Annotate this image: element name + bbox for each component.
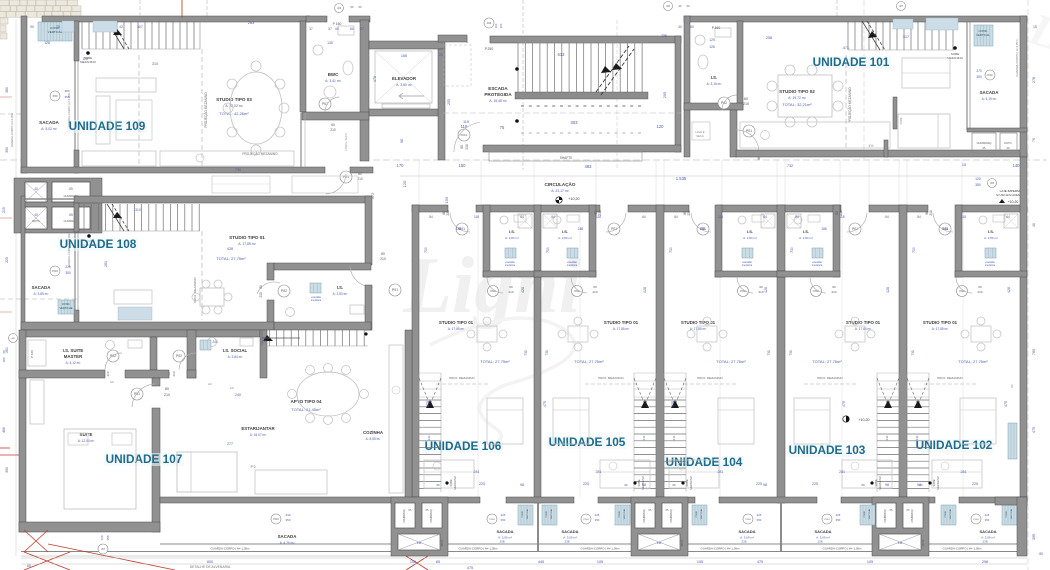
svg-text:SOBE: SOBE xyxy=(899,117,903,124)
svg-text:85: 85 xyxy=(1039,552,1043,556)
svg-text:COND.: COND. xyxy=(1006,510,1008,517)
svg-text:SACADA: SACADA xyxy=(980,90,1000,95)
svg-text:PJ04: PJ04 xyxy=(746,519,752,521)
svg-text:UNIDADE 102: UNIDADE 102 xyxy=(916,438,993,452)
svg-text:STUDIO TIPO 01: STUDIO TIPO 01 xyxy=(229,235,265,240)
svg-text:QUARDA-CORPO | H=1,05m: QUARDA-CORPO | H=1,05m xyxy=(10,113,14,147)
svg-text:CHURRASQ: CHURRASQ xyxy=(403,509,406,522)
svg-text:445: 445 xyxy=(538,560,544,564)
svg-text:DETALHE DE ALVENARIA: DETALHE DE ALVENARIA xyxy=(190,565,231,569)
svg-text:225: 225 xyxy=(985,513,990,517)
svg-text:A: 2,83 m²: A: 2,83 m² xyxy=(505,236,519,240)
svg-text:PROJEÇÃO MEZANINO: PROJEÇÃO MEZANINO xyxy=(203,92,208,128)
svg-text:A: 8,55 m²: A: 8,55 m² xyxy=(366,437,381,441)
svg-text:64: 64 xyxy=(642,215,646,219)
svg-text:VERTICAL: VERTICAL xyxy=(1010,508,1013,519)
svg-text:APTO TIPO 04: APTO TIPO 04 xyxy=(290,399,322,404)
svg-text:VERTICAL: VERTICAL xyxy=(949,508,952,519)
svg-text:VERTICAL: VERTICAL xyxy=(976,33,990,37)
svg-text:+10,20: +10,20 xyxy=(568,197,579,201)
svg-text:170: 170 xyxy=(397,163,405,168)
svg-text:350: 350 xyxy=(975,183,981,187)
svg-text:350: 350 xyxy=(5,467,9,473)
svg-text:66: 66 xyxy=(672,483,676,487)
svg-text:350: 350 xyxy=(501,518,506,522)
svg-text:350: 350 xyxy=(976,75,982,79)
svg-text:A: 17,85 m²: A: 17,85 m² xyxy=(238,242,256,246)
svg-text:60: 60 xyxy=(335,27,339,31)
svg-text:TOTAL: 42,26m²: TOTAL: 42,26m² xyxy=(219,111,249,116)
svg-text:105: 105 xyxy=(697,560,703,564)
svg-text:317: 317 xyxy=(903,35,909,39)
svg-text:225: 225 xyxy=(501,513,506,517)
svg-text:P02: P02 xyxy=(110,354,116,358)
svg-text:J67: J67 xyxy=(101,548,106,551)
svg-text:PROJ. MEZANINO: PROJ. MEZANINO xyxy=(817,376,843,380)
svg-text:428: 428 xyxy=(227,247,233,251)
svg-text:P02: P02 xyxy=(281,289,287,293)
svg-text:475: 475 xyxy=(757,560,763,564)
svg-text:40: 40 xyxy=(1032,223,1036,227)
svg-text:60: 60 xyxy=(832,285,836,289)
svg-text:295: 295 xyxy=(662,91,667,98)
svg-text:GUARDA-CORPO | H=1,05m: GUARDA-CORPO | H=1,05m xyxy=(1015,39,1019,77)
svg-text:105: 105 xyxy=(597,560,603,564)
svg-text:98: 98 xyxy=(520,483,524,487)
svg-text:60: 60 xyxy=(744,97,748,101)
svg-text:483: 483 xyxy=(585,164,593,169)
svg-text:358: 358 xyxy=(106,535,110,540)
svg-text:118: 118 xyxy=(718,215,723,219)
svg-text:188: 188 xyxy=(578,227,584,231)
svg-text:15: 15 xyxy=(962,163,966,167)
svg-text:ESTARIJANTAR: ESTARIJANTAR xyxy=(241,426,275,431)
svg-text:SOBE: SOBE xyxy=(685,479,689,486)
svg-text:310: 310 xyxy=(885,435,889,440)
svg-text:210: 210 xyxy=(164,393,170,397)
svg-text:98: 98 xyxy=(763,483,767,487)
svg-text:150: 150 xyxy=(459,163,467,168)
svg-text:SECA: SECA xyxy=(696,134,704,138)
svg-text:A: 17,85 m²: A: 17,85 m² xyxy=(932,327,948,331)
svg-text:65: 65 xyxy=(27,564,31,568)
svg-text:100: 100 xyxy=(494,23,498,28)
svg-text:130: 130 xyxy=(417,541,422,545)
svg-text:40: 40 xyxy=(678,25,682,29)
svg-text:MASTER: MASTER xyxy=(64,354,83,359)
svg-text:+10,20: +10,20 xyxy=(1008,200,1019,204)
svg-text:I.S.: I.S. xyxy=(509,229,515,234)
svg-text:COND.: COND. xyxy=(696,510,698,517)
svg-text:VERTICHE: VERTICHE xyxy=(59,306,72,310)
svg-text:A: 28,02 m²: A: 28,02 m² xyxy=(225,104,243,108)
svg-text:380: 380 xyxy=(64,89,69,93)
svg-text:310: 310 xyxy=(135,208,141,212)
svg-text:210: 210 xyxy=(831,290,836,294)
svg-text:J03: J03 xyxy=(990,182,995,185)
svg-text:80: 80 xyxy=(381,252,385,256)
svg-text:730: 730 xyxy=(235,168,241,172)
svg-text:VERTICAL: VERTICAL xyxy=(700,508,703,519)
svg-text:118: 118 xyxy=(839,215,844,219)
svg-text:A: 2,83 m²: A: 2,83 m² xyxy=(333,292,348,296)
svg-text:90: 90 xyxy=(30,25,34,29)
svg-text:A: 3,84 m²: A: 3,84 m² xyxy=(228,355,243,359)
svg-text:STUDIO TIPO 03: STUDIO TIPO 03 xyxy=(216,97,252,102)
svg-text:66: 66 xyxy=(861,483,865,487)
svg-text:85: 85 xyxy=(436,560,440,564)
svg-text:STUDIO TIPO 02: STUDIO TIPO 02 xyxy=(779,89,815,94)
svg-text:277: 277 xyxy=(227,442,233,446)
svg-text:225: 225 xyxy=(5,257,9,263)
svg-text:DUTO: DUTO xyxy=(32,219,39,223)
svg-text:350: 350 xyxy=(285,518,290,522)
svg-text:UNIDADE 104: UNIDADE 104 xyxy=(666,455,743,469)
svg-text:243: 243 xyxy=(212,340,218,344)
svg-text:76: 76 xyxy=(1032,138,1036,142)
svg-text:225: 225 xyxy=(479,482,485,486)
svg-text:210: 210 xyxy=(465,144,469,150)
svg-text:I.S.: I.S. xyxy=(988,229,994,234)
svg-text:730: 730 xyxy=(789,350,793,356)
svg-text:98: 98 xyxy=(400,139,404,143)
svg-text:A: 2,80 m²: A: 2,80 m² xyxy=(396,83,413,87)
svg-text:42: 42 xyxy=(119,25,123,29)
svg-text:A: 3,16 m²: A: 3,16 m² xyxy=(707,82,722,86)
svg-text:UNIDADE 105: UNIDADE 105 xyxy=(549,435,626,449)
svg-text:20: 20 xyxy=(439,53,443,57)
svg-text:CIRCULAÇÃO: CIRCULAÇÃO xyxy=(545,181,576,187)
svg-text:40: 40 xyxy=(1006,146,1010,150)
svg-text:SACADA: SACADA xyxy=(32,285,52,290)
svg-text:210: 210 xyxy=(446,210,450,216)
svg-text:60: 60 xyxy=(593,285,597,289)
svg-text:120: 120 xyxy=(657,124,665,129)
svg-text:GUARDA-CORPO | H= 1,09m: GUARDA-CORPO | H= 1,09m xyxy=(581,547,620,551)
svg-text:J04: J04 xyxy=(487,21,492,25)
svg-text:160: 160 xyxy=(100,535,104,540)
svg-text:281: 281 xyxy=(104,261,108,267)
svg-text:PJ04: PJ04 xyxy=(584,519,590,521)
svg-text:COZINHA: COZINHA xyxy=(363,430,384,435)
svg-text:COND.: COND. xyxy=(945,510,947,517)
svg-text:P02: P02 xyxy=(176,354,182,358)
svg-text:188: 188 xyxy=(456,227,462,231)
svg-text:CHURRASQ: CHURRASQ xyxy=(430,509,433,522)
svg-text:350: 350 xyxy=(836,518,841,522)
svg-text:128: 128 xyxy=(82,57,88,61)
svg-text:GUARDA-CORPO | H= 1,09m: GUARDA-CORPO | H= 1,09m xyxy=(459,547,498,551)
svg-text:15: 15 xyxy=(1033,25,1037,29)
svg-text:180: 180 xyxy=(2,357,6,362)
svg-text:COND.: COND. xyxy=(522,510,524,517)
svg-text:37: 37 xyxy=(328,27,332,31)
svg-text:340: 340 xyxy=(285,513,290,517)
svg-text:A: 17,85 m²: A: 17,85 m² xyxy=(613,327,629,331)
svg-text:A: 3,89 m²: A: 3,89 m² xyxy=(34,292,49,296)
svg-text:130: 130 xyxy=(657,541,662,545)
svg-text:730: 730 xyxy=(911,350,915,356)
svg-text:A: 4,12 m²: A: 4,12 m² xyxy=(66,361,81,365)
svg-text:GUARDA-CORPO | H= 1,09m: GUARDA-CORPO | H= 1,09m xyxy=(823,547,862,551)
svg-text:84: 84 xyxy=(429,215,433,219)
svg-text:40: 40 xyxy=(678,4,682,8)
svg-text:BWC: BWC xyxy=(328,72,339,77)
svg-text:J04: J04 xyxy=(666,5,671,8)
svg-text:60: 60 xyxy=(978,285,982,289)
svg-text:188: 188 xyxy=(700,227,706,231)
svg-text:PROJEÇÃO MEZANINO: PROJEÇÃO MEZANINO xyxy=(847,87,852,123)
svg-text:310: 310 xyxy=(427,435,431,440)
svg-text:210: 210 xyxy=(380,257,386,261)
svg-text:TOTAL: 27,75m²: TOTAL: 27,75m² xyxy=(716,359,746,364)
svg-text:P.160: P.160 xyxy=(712,26,721,30)
svg-text:CHURRASQ: CHURRASQ xyxy=(670,509,673,522)
svg-text:SACADA: SACADA xyxy=(496,529,513,534)
svg-text:80: 80 xyxy=(165,387,169,391)
svg-text:210: 210 xyxy=(977,290,982,294)
svg-text:ELEVADOR: ELEVADOR xyxy=(392,76,417,81)
svg-text:GUARDA-CORPO | H= 1,09m: GUARDA-CORPO | H= 1,09m xyxy=(943,547,982,551)
svg-text:I.S. SUITE: I.S. SUITE xyxy=(63,348,84,353)
svg-text:188: 188 xyxy=(821,227,827,231)
svg-text:140: 140 xyxy=(1013,163,1021,168)
svg-text:281: 281 xyxy=(474,470,480,474)
svg-text:P 0: P 0 xyxy=(251,465,256,469)
svg-text:SOBE: SOBE xyxy=(874,479,878,486)
svg-text:mecânica: mecânica xyxy=(311,299,322,302)
svg-text:-673-: -673- xyxy=(842,46,849,50)
svg-text:mecânica: mecânica xyxy=(812,264,823,267)
svg-text:VERTICAL: VERTICAL xyxy=(868,508,871,519)
svg-text:P 160: P 160 xyxy=(30,350,34,358)
svg-text:475: 475 xyxy=(543,401,547,407)
svg-text:310: 310 xyxy=(642,435,646,440)
svg-text:60: 60 xyxy=(686,4,690,8)
svg-text:613: 613 xyxy=(558,52,566,57)
svg-text:475: 475 xyxy=(671,401,675,407)
svg-text:120: 120 xyxy=(402,180,407,187)
svg-text:1.535: 1.535 xyxy=(676,176,687,181)
svg-text:ESCADA: ESCADA xyxy=(488,86,508,91)
svg-text:118: 118 xyxy=(474,215,479,219)
svg-text:84: 84 xyxy=(795,215,799,219)
svg-text:P.250: P.250 xyxy=(485,47,494,51)
svg-text:A: 2,83 m²: A: 2,83 m² xyxy=(984,236,998,240)
svg-text:98: 98 xyxy=(642,483,646,487)
svg-text:225: 225 xyxy=(595,513,600,517)
svg-text:298: 298 xyxy=(982,560,988,564)
svg-text:CHURRASQ: CHURRASQ xyxy=(884,509,887,522)
svg-text:75: 75 xyxy=(56,25,60,29)
svg-text:A: 23,17 m²: A: 23,17 m² xyxy=(551,189,569,193)
svg-text:PJ04: PJ04 xyxy=(52,270,58,273)
svg-text:475: 475 xyxy=(467,566,473,570)
svg-text:PROJ. MEZANINO: PROJ. MEZANINO xyxy=(193,277,197,303)
svg-text:98: 98 xyxy=(885,483,889,487)
svg-text:350: 350 xyxy=(595,518,600,522)
svg-text:310: 310 xyxy=(672,435,676,440)
svg-text:J04: J04 xyxy=(337,7,342,10)
svg-text:UNIDADE 108: UNIDADE 108 xyxy=(60,237,137,251)
svg-text:VERTICAL: VERTICAL xyxy=(48,30,63,34)
svg-text:263: 263 xyxy=(248,21,254,25)
svg-text:475: 475 xyxy=(1004,401,1008,407)
svg-text:PJ04: PJ04 xyxy=(490,519,496,521)
svg-text:428: 428 xyxy=(521,287,525,293)
svg-text:350: 350 xyxy=(5,147,9,153)
svg-text:SACADA: SACADA xyxy=(39,120,59,125)
svg-text:mecânica: mecânica xyxy=(567,264,578,267)
svg-text:80: 80 xyxy=(460,145,464,149)
svg-text:UNIDADE 109: UNIDADE 109 xyxy=(69,119,146,133)
svg-text:AC: AC xyxy=(1010,384,1014,388)
svg-text:A: 5,02 m²: A: 5,02 m² xyxy=(41,127,58,131)
svg-text:A: 15,48 m²: A: 15,48 m² xyxy=(489,99,507,103)
svg-text:84: 84 xyxy=(551,215,555,219)
svg-text:PJ01: PJ01 xyxy=(273,518,279,521)
svg-text:225: 225 xyxy=(836,513,841,517)
svg-text:COND.: COND. xyxy=(864,510,866,517)
svg-text:60: 60 xyxy=(509,285,513,289)
svg-text:4%: 4% xyxy=(869,144,874,148)
svg-text:115: 115 xyxy=(463,120,469,124)
svg-text:428: 428 xyxy=(643,287,647,293)
svg-text:135: 135 xyxy=(327,41,333,45)
svg-text:210: 210 xyxy=(508,290,513,294)
svg-text:307: 307 xyxy=(137,25,143,29)
svg-text:PROJ. MEZANINO: PROJ. MEZANINO xyxy=(937,376,963,380)
svg-text:350: 350 xyxy=(65,271,71,275)
svg-text:SACADA: SACADA xyxy=(278,534,298,539)
svg-text:STUDIO TIPO 01: STUDIO TIPO 01 xyxy=(604,320,639,325)
svg-text:SACADA: SACADA xyxy=(738,529,755,534)
svg-text:UNIDADE 103: UNIDADE 103 xyxy=(789,443,866,457)
svg-text:37: 37 xyxy=(309,27,313,31)
svg-text:GUARDA-CORPO | H= 1,09m: GUARDA-CORPO | H= 1,09m xyxy=(701,547,740,551)
svg-text:350: 350 xyxy=(64,95,69,99)
svg-text:CHURRASQ: CHURRASQ xyxy=(977,141,992,145)
svg-text:125: 125 xyxy=(709,38,715,42)
svg-text:A: 4,19 m²: A: 4,19 m² xyxy=(982,97,997,101)
svg-text:DUTO: DUTO xyxy=(923,540,925,547)
svg-text:126: 126 xyxy=(709,45,715,49)
svg-text:255: 255 xyxy=(447,99,451,105)
svg-text:65: 65 xyxy=(69,187,73,191)
svg-text:P.03: P.03 xyxy=(987,73,993,77)
svg-text:730: 730 xyxy=(790,247,794,253)
svg-text:A: 12,54 m²: A: 12,54 m² xyxy=(78,439,94,443)
svg-text:210: 210 xyxy=(330,128,336,132)
svg-text:310: 310 xyxy=(915,435,919,440)
svg-text:P.60: P.60 xyxy=(53,95,58,98)
svg-text:TOTAL: 27,75m²: TOTAL: 27,75m² xyxy=(812,359,842,364)
svg-text:238: 238 xyxy=(564,540,569,544)
svg-text:UNIDADE 101: UNIDADE 101 xyxy=(813,55,890,69)
svg-text:40: 40 xyxy=(34,213,38,217)
svg-text:VERTICAL: VERTICAL xyxy=(526,508,529,519)
svg-text:178: 178 xyxy=(373,76,377,82)
svg-text:238: 238 xyxy=(499,540,504,544)
svg-text:210: 210 xyxy=(259,292,263,298)
svg-text:165: 165 xyxy=(401,54,407,58)
svg-text:P01: P01 xyxy=(392,288,398,292)
svg-text:732: 732 xyxy=(787,164,793,168)
svg-text:I.S.: I.S. xyxy=(562,229,568,234)
svg-text:DUTO: DUTO xyxy=(1004,141,1011,145)
svg-text:60: 60 xyxy=(259,285,263,289)
svg-text:118: 118 xyxy=(461,124,468,129)
svg-text:278: 278 xyxy=(1032,77,1036,83)
svg-text:188: 188 xyxy=(943,227,949,231)
svg-text:I.S.: I.S. xyxy=(711,75,717,80)
svg-text:128: 128 xyxy=(44,41,50,45)
svg-text:80: 80 xyxy=(358,172,362,176)
svg-text:VERTICAL: VERTICAL xyxy=(550,508,553,519)
svg-text:281: 281 xyxy=(596,470,602,474)
svg-text:428: 428 xyxy=(1007,287,1011,293)
svg-text:75: 75 xyxy=(500,125,505,130)
svg-text:428: 428 xyxy=(764,287,768,293)
svg-text:428: 428 xyxy=(886,287,890,293)
svg-text:60: 60 xyxy=(350,27,354,31)
svg-text:730: 730 xyxy=(546,247,550,253)
svg-text:100: 100 xyxy=(499,23,503,28)
svg-text:STUDIO TIPO 01: STUDIO TIPO 01 xyxy=(923,320,958,325)
svg-text:A: 2,83 m²: A: 2,83 m² xyxy=(558,236,572,240)
svg-text:COND.: COND. xyxy=(619,510,621,517)
svg-text:GUARDA-CORPO | H= 1,09m: GUARDA-CORPO | H= 1,09m xyxy=(211,547,250,551)
svg-text:205: 205 xyxy=(2,207,6,213)
svg-text:TOTAL: 27,75m²: TOTAL: 27,75m² xyxy=(574,359,604,364)
svg-text:VERTICAL: VERTICAL xyxy=(623,508,626,519)
svg-text:730: 730 xyxy=(912,247,916,253)
svg-text:303: 303 xyxy=(571,120,579,125)
svg-text:60: 60 xyxy=(358,5,362,9)
svg-text:66: 66 xyxy=(624,483,628,487)
svg-text:120: 120 xyxy=(975,177,981,181)
svg-text:210: 210 xyxy=(687,210,691,216)
svg-text:118: 118 xyxy=(961,215,966,219)
svg-text:210: 210 xyxy=(592,290,597,294)
svg-text:GUARDA-CORPO | H=1,05m: GUARDA-CORPO | H=1,05m xyxy=(67,233,71,267)
svg-text:+10,20: +10,20 xyxy=(858,418,869,422)
svg-text:760: 760 xyxy=(1032,349,1036,355)
svg-text:800: 800 xyxy=(207,560,213,564)
svg-text:395: 395 xyxy=(1032,534,1036,540)
svg-text:105: 105 xyxy=(410,560,416,564)
svg-text:64: 64 xyxy=(520,215,524,219)
svg-text:A: 2,83 m²: A: 2,83 m² xyxy=(743,236,757,240)
svg-text:A: 18,07 m²: A: 18,07 m² xyxy=(250,433,266,437)
svg-text:TOTAL: 27,75m²: TOTAL: 27,75m² xyxy=(480,359,510,364)
svg-text:466: 466 xyxy=(2,427,6,433)
svg-text:SACADA: SACADA xyxy=(561,529,578,534)
svg-text:225: 225 xyxy=(757,513,762,517)
svg-text:380: 380 xyxy=(5,87,9,93)
svg-text:SOBE: SOBE xyxy=(637,479,641,486)
svg-text:238: 238 xyxy=(982,540,987,544)
svg-text:60: 60 xyxy=(331,123,335,127)
svg-text:66: 66 xyxy=(436,483,440,487)
svg-text:SOBE: SOBE xyxy=(932,479,936,486)
svg-text:60: 60 xyxy=(350,5,354,9)
svg-text:118: 118 xyxy=(596,215,601,219)
svg-text:210: 210 xyxy=(743,102,749,106)
svg-text:475: 475 xyxy=(426,401,430,407)
svg-text:CHURRASQ: CHURRASQ xyxy=(643,509,646,522)
svg-text:A: 19,72 m²: A: 19,72 m² xyxy=(788,96,806,100)
